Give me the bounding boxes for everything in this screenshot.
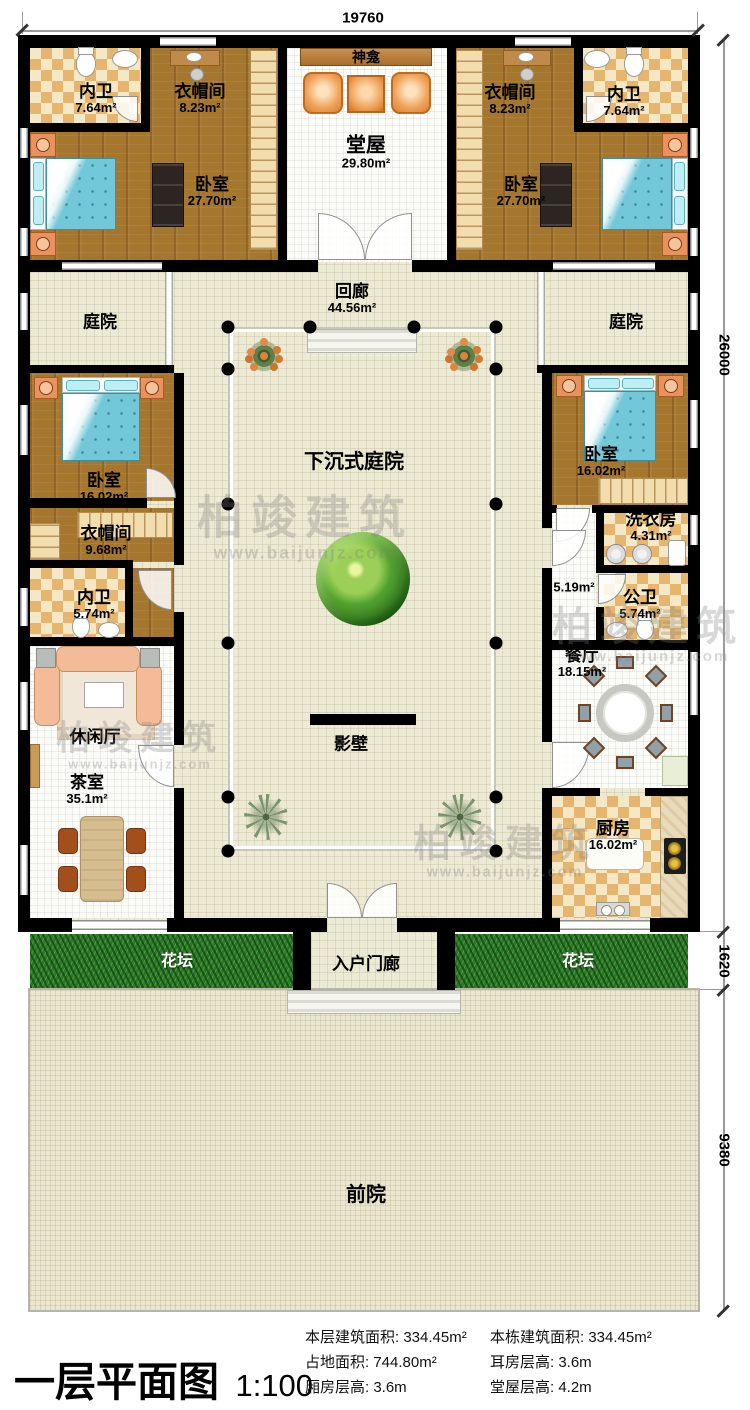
toilet-icon: [76, 52, 96, 77]
column: [490, 321, 503, 334]
window: [20, 405, 28, 455]
column: [490, 637, 503, 650]
room-label-bedroom-tr: 卧室27.70m²: [497, 175, 545, 209]
room-name: 卧室: [188, 175, 236, 194]
lamp-icon: [186, 52, 202, 62]
room-label-public-bath: 公卫5.74m²: [619, 588, 660, 622]
room-area: 5.74m²: [619, 607, 660, 622]
wall: [125, 568, 133, 638]
wall: [18, 48, 30, 932]
room-label-bedroom-ml: 卧室16.02m²: [80, 471, 128, 505]
room-name: 茶室: [66, 773, 107, 792]
nightstand-icon: [662, 133, 688, 157]
pillow-icon: [588, 378, 620, 389]
armchair-icon: [391, 72, 431, 114]
sofa-icon: [34, 664, 60, 726]
room-area: 7.64m²: [603, 104, 644, 119]
window: [20, 293, 28, 330]
legend-title-block: 一层平面图 1:100: [14, 1348, 310, 1410]
dimension-line: [22, 30, 698, 32]
room-name: 影壁: [334, 734, 368, 753]
room-name: 入户门廊: [332, 954, 400, 973]
room-label-laundry: 洗衣房4.31m²: [626, 510, 677, 544]
table-icon: [347, 75, 385, 113]
wall: [174, 788, 184, 918]
room-label-main-hall: 堂屋29.80m²: [342, 134, 390, 171]
room-area: 16.02m²: [589, 838, 637, 853]
room-label-courtyard-right: 庭院: [609, 312, 643, 331]
room-label-lounge: 休闲厅: [70, 727, 121, 746]
room-name: 回廊: [328, 282, 376, 301]
dimension-right-upper: 26000: [716, 334, 733, 376]
floor-plan: 神龛: [0, 0, 750, 1410]
potted-plant-icon: [444, 336, 484, 376]
sink-icon: [98, 622, 120, 638]
palm-plant-icon: [244, 794, 288, 840]
room-area: 8.23m²: [485, 102, 536, 117]
console-icon: [30, 744, 40, 788]
dresser-icon: [152, 163, 184, 227]
nightstand-icon: [556, 375, 582, 397]
front-yard-fence: [28, 988, 700, 1312]
window: [20, 128, 28, 158]
column: [408, 321, 421, 334]
wall: [293, 918, 311, 990]
palm-plant-icon: [438, 794, 482, 840]
room-area: 29.80m²: [342, 157, 390, 172]
wall: [688, 48, 700, 932]
courtyard-steps: [307, 329, 417, 353]
dining-table-icon: [596, 684, 654, 742]
room-name: 花坛: [562, 953, 594, 971]
room-label-bath-ml: 内卫5.74m²: [73, 588, 114, 622]
dimension-top: 19760: [342, 10, 384, 27]
window: [20, 588, 28, 626]
bed-icon: [62, 393, 140, 461]
side-table-icon: [140, 648, 160, 668]
chair-icon: [660, 704, 673, 722]
room-name: 卧室: [80, 471, 128, 490]
room-label-hall-519: 5.19m²: [553, 581, 594, 596]
tree-icon: [316, 532, 410, 626]
screen-wall: [310, 714, 416, 725]
room-area: 7.64m²: [75, 101, 116, 116]
window: [690, 293, 698, 330]
room-area: 5.19m²: [553, 581, 594, 596]
column: [222, 845, 235, 858]
room-area: 4.31m²: [626, 529, 677, 544]
kitchen-sink-icon: [596, 902, 630, 916]
room-area: 27.70m²: [188, 194, 236, 209]
wall: [596, 513, 604, 573]
nightstand-icon: [662, 232, 688, 256]
room-name: 厨房: [589, 819, 637, 838]
room-name: 衣帽间: [81, 524, 132, 543]
wall: [437, 918, 455, 990]
stat-item: 占地面积: 744.80m²: [305, 1351, 467, 1376]
sink-icon: [112, 50, 138, 68]
room-label-kitchen: 厨房16.02m²: [589, 819, 637, 853]
room-name: 衣帽间: [175, 82, 226, 101]
wall: [542, 788, 552, 918]
room-label-closet-tr: 衣帽间8.23m²: [485, 83, 536, 117]
potted-plant-icon: [244, 336, 284, 376]
wall: [650, 918, 700, 932]
window: [20, 682, 28, 730]
room-label-flowerbed-left: 花坛: [161, 953, 193, 971]
window: [62, 262, 162, 270]
wall: [447, 48, 456, 270]
stat-item: 本层建筑面积: 334.45m²: [305, 1326, 467, 1351]
dimension-right-mid: 1620: [716, 944, 733, 977]
armchair-icon: [303, 72, 343, 114]
room-name: 休闲厅: [70, 727, 121, 746]
room-area: 16.02m²: [577, 464, 625, 479]
room-name: 花坛: [161, 953, 193, 971]
wall: [397, 918, 560, 932]
legend-stats-col2: 本栋建筑面积: 334.45m² 耳房层高: 3.6m 堂屋层高: 4.2m: [490, 1326, 652, 1401]
window: [160, 37, 216, 46]
lamp-icon: [518, 52, 534, 62]
courtyard-partition: [165, 272, 173, 365]
column: [222, 637, 235, 650]
column: [490, 845, 503, 858]
window: [690, 228, 698, 256]
wardrobe-icon: [250, 50, 277, 250]
wall: [552, 788, 600, 796]
column: [490, 791, 503, 804]
sink-icon: [606, 622, 628, 638]
window: [20, 845, 28, 895]
room-label-bedroom-tl: 卧室27.70m²: [188, 175, 236, 209]
stat-item: 堂屋层高: 4.2m: [490, 1376, 652, 1401]
sofa-icon: [56, 646, 140, 672]
washing-machine-icon: [606, 544, 626, 564]
wall: [174, 373, 184, 565]
toilet-icon: [624, 52, 644, 77]
room-name: 公卫: [619, 588, 660, 607]
column: [304, 321, 317, 334]
window: [515, 37, 571, 46]
column: [222, 498, 235, 511]
wall: [30, 637, 184, 646]
sink-icon: [584, 50, 610, 68]
wall: [542, 505, 557, 513]
bed-icon: [602, 158, 672, 230]
window: [560, 920, 650, 930]
room-area: 9.68m²: [81, 543, 132, 558]
pillow-icon: [66, 380, 100, 391]
wall: [574, 48, 583, 132]
chair-icon: [126, 828, 146, 854]
page-title: 一层平面图: [14, 1359, 219, 1405]
window: [690, 515, 698, 545]
shrine: 神龛: [300, 48, 432, 66]
wall: [30, 560, 133, 568]
sofa-icon: [136, 664, 162, 726]
chair-icon: [58, 866, 78, 892]
coffee-table-icon: [84, 682, 124, 708]
room-label-courtyard-left: 庭院: [83, 312, 117, 331]
wall: [596, 607, 604, 640]
room-label-closet-ml: 衣帽间9.68m²: [81, 524, 132, 558]
room-label-bath-tl: 内卫7.64m²: [75, 82, 116, 116]
column: [490, 363, 503, 376]
nightstand-icon: [140, 377, 164, 399]
room-label-screen-wall: 影壁: [334, 734, 368, 753]
room-name: 庭院: [609, 312, 643, 331]
wall: [596, 565, 688, 573]
room-name: 卧室: [497, 175, 545, 194]
chair-icon: [190, 68, 204, 81]
room-name: 洗衣房: [626, 510, 677, 529]
tea-table-icon: [80, 816, 124, 902]
room-name: 餐厅: [558, 646, 606, 665]
window: [20, 228, 28, 256]
stat-item: 耳房层高: 3.6m: [490, 1351, 652, 1376]
room-name: 前院: [346, 1184, 386, 1206]
nightstand-icon: [658, 375, 684, 397]
chair-icon: [616, 656, 634, 669]
wall: [278, 48, 287, 270]
chair-icon: [616, 756, 634, 769]
pillow-icon: [674, 196, 685, 225]
column: [222, 791, 235, 804]
chair-icon: [578, 704, 591, 722]
room-area: 27.70m²: [497, 194, 545, 209]
pillow-icon: [622, 378, 654, 389]
column: [490, 498, 503, 511]
pillow-icon: [33, 196, 44, 225]
side-table-icon: [36, 648, 56, 668]
wall: [583, 123, 688, 132]
shrine-label: 神龛: [352, 47, 380, 67]
room-name: 内卫: [73, 588, 114, 607]
wall: [30, 123, 141, 132]
column: [222, 363, 235, 376]
room-label-bath-tr: 内卫7.64m²: [603, 85, 644, 119]
window: [690, 400, 698, 448]
wardrobe-icon: [456, 50, 483, 250]
room-name: 衣帽间: [485, 83, 536, 102]
bed-icon: [46, 158, 116, 230]
entry-steps: [287, 990, 461, 1014]
wall: [645, 788, 688, 796]
room-name: 卧室: [577, 445, 625, 464]
column: [222, 321, 235, 334]
room-area: 35.1m²: [66, 792, 107, 807]
room-label-cloister: 回廊44.56m²: [328, 282, 376, 316]
chair-icon: [58, 828, 78, 854]
wall: [174, 612, 184, 745]
room-area: 8.23m²: [175, 101, 226, 116]
window: [690, 652, 698, 715]
nightstand-icon: [34, 377, 58, 399]
wall: [30, 365, 174, 373]
window: [553, 262, 655, 270]
chair-icon: [126, 866, 146, 892]
washing-machine-icon: [632, 544, 652, 564]
room-label-flowerbed-right: 花坛: [562, 953, 594, 971]
courtyard-partition: [537, 272, 545, 365]
wall: [542, 568, 552, 742]
fridge-icon: [662, 756, 688, 786]
legend-stats-col1: 本层建筑面积: 334.45m² 占地面积: 744.80m² 厢房层高: 3.…: [305, 1326, 467, 1401]
pillow-icon: [33, 162, 44, 191]
pillow-icon: [104, 380, 138, 391]
chair-icon: [520, 68, 534, 81]
room-name: 内卫: [75, 82, 116, 101]
room-name: 堂屋: [342, 134, 390, 156]
room-label-closet-tl: 衣帽间8.23m²: [175, 82, 226, 116]
stat-item: 厢房层高: 3.6m: [305, 1376, 467, 1401]
wardrobe-icon: [30, 523, 60, 560]
stat-item: 本栋建筑面积: 334.45m²: [490, 1326, 652, 1351]
room-label-front-yard: 前院: [346, 1184, 386, 1206]
stove-icon: [664, 838, 686, 874]
wall: [537, 365, 688, 373]
room-area: 44.56m²: [328, 301, 376, 316]
room-area: 5.74m²: [73, 607, 114, 622]
wall: [141, 48, 150, 132]
pillow-icon: [674, 162, 685, 191]
room-area: 16.02m²: [80, 490, 128, 505]
window: [690, 128, 698, 158]
scale-label: 1:100: [235, 1368, 313, 1403]
room-label-tea-room: 茶室35.1m²: [66, 773, 107, 807]
wall: [18, 918, 72, 932]
window: [72, 920, 167, 930]
room-label-sunken-courtyard: 下沉式庭院: [304, 451, 404, 473]
room-name: 庭院: [83, 312, 117, 331]
room-label-entry-porch: 入户门廊: [332, 954, 400, 973]
room-name: 内卫: [603, 85, 644, 104]
room-label-dining: 餐厅18.15m²: [558, 646, 606, 680]
dimension-right-lower: 9380: [716, 1133, 733, 1166]
room-label-bedroom-mr: 卧室16.02m²: [577, 445, 625, 479]
wardrobe-icon: [598, 478, 688, 504]
room-name: 下沉式庭院: [304, 451, 404, 473]
room-area: 18.15m²: [558, 665, 606, 680]
nightstand-icon: [30, 133, 56, 157]
nightstand-icon: [30, 232, 56, 256]
dimension-line: [723, 40, 725, 1312]
